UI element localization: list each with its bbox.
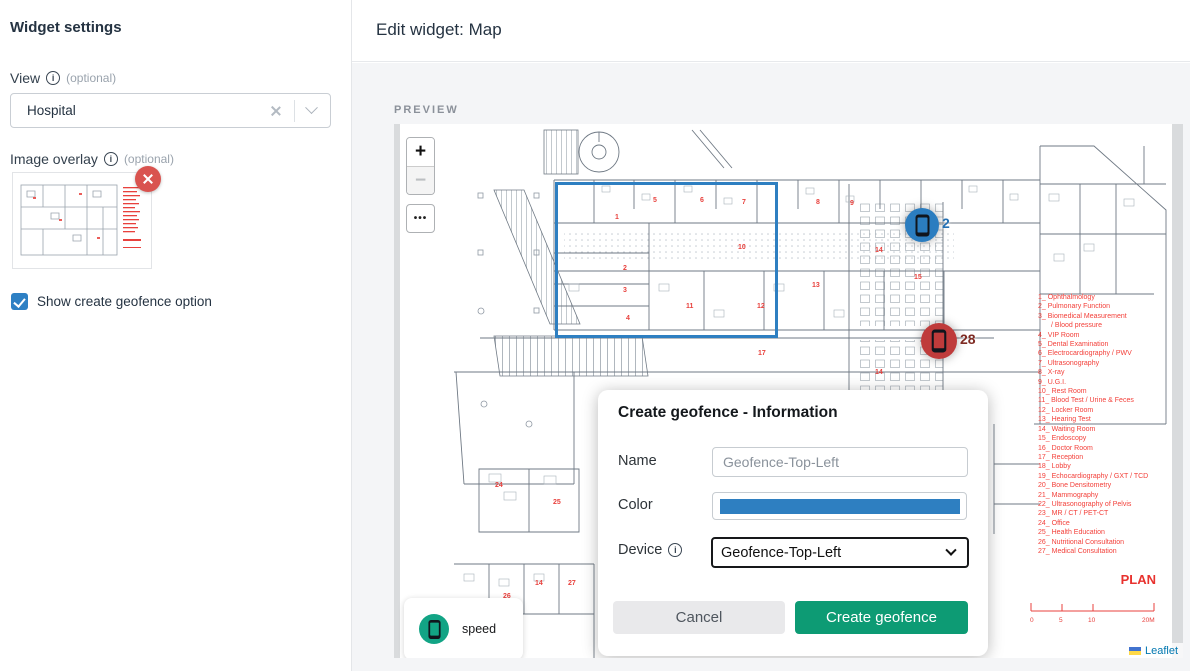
remove-overlay-button[interactable] [135,166,161,192]
marker-circle [905,208,939,242]
dialog-title: Create geofence - Information [618,404,838,422]
plan-legend-item: 11_ Blood Test / Urine & Feces [1038,396,1170,405]
speed-marker-circle [419,614,449,644]
overlay-field-label: Image overlay (optional) [10,151,174,167]
plan-legend-item: 7_ Ultrasonography [1038,359,1170,368]
view-field-label: View (optional) [10,70,116,86]
plan-legend-item: / Blood pressure [1038,321,1170,330]
phone-icon [915,214,930,237]
zoom-in-button[interactable]: + [407,138,434,166]
plan-legend-item: 25_ Health Education [1038,528,1170,537]
plan-legend-item: 2_ Pulmonary Function [1038,302,1170,311]
create-geofence-button[interactable]: Create geofence [795,601,968,634]
plan-legend-item: 10_ Rest Room [1038,387,1170,396]
plan-title: PLAN [1094,572,1156,587]
geofence-name-input[interactable] [712,447,968,477]
select-divider [294,100,295,122]
color-swatch [720,499,960,514]
marker-count: 28 [960,331,976,347]
plan-legend-item: 9_ U.G.I. [1038,378,1170,387]
show-geofence-checkbox[interactable] [11,293,28,310]
chevron-down-icon[interactable] [305,101,318,114]
leaflet-attribution-link[interactable]: Leaflet [1145,645,1178,657]
overlay-optional-hint: (optional) [124,152,174,166]
speed-legend-label: speed [462,622,496,636]
marker-count: 2 [942,215,950,231]
plan-legend-item: 19_ Echocardiography / GXT / TCD [1038,472,1170,481]
show-geofence-label: Show create geofence option [37,294,212,309]
plan-legend-item: 5_ Dental Examination [1038,340,1170,349]
plan-legend-item: 14_ Waiting Room [1038,425,1170,434]
plan-legend-item: 18_ Lobby [1038,462,1170,471]
preview-label: PREVIEW [394,104,459,116]
overlay-label: Image overlay [10,151,98,167]
svg-text:20M: 20M [1142,617,1155,624]
plan-legend-item: 16_ Doctor Room [1038,444,1170,453]
view-label: View [10,70,40,86]
image-overlay-thumbnail [12,172,152,269]
plan-legend-item: 24_ Office [1038,519,1170,528]
plan-legend-item: 20_ Bone Densitometry [1038,481,1170,490]
map-more-button[interactable]: ••• [406,204,435,233]
scale-bar: 0 5 10 20M [1030,601,1160,627]
svg-text:5: 5 [1059,617,1063,624]
create-geofence-dialog: Create geofence - Information Name Color… [598,390,988,656]
plan-legend-item: 12_ Locker Room [1038,406,1170,415]
device-marker-blue[interactable]: 2 [905,208,939,242]
view-select-value: Hospital [11,103,270,118]
plan-legend-item: 23_ MR / CT / PET-CT [1038,509,1170,518]
plan-legend-item: 21_ Mammography [1038,491,1170,500]
plan-legend-item: 6_ Electrocardiography / PWV [1038,349,1170,358]
phone-icon [428,619,441,640]
clear-icon[interactable] [270,105,282,117]
view-optional-hint: (optional) [66,71,116,85]
plan-legend-item: 26_ Nutritional Consultation [1038,538,1170,547]
name-label: Name [618,453,657,469]
chevron-down-icon [945,544,956,555]
panel-title: Widget settings [10,19,122,36]
zoom-controls: + − [406,137,435,195]
phone-icon [931,329,947,353]
plan-legend-item: 3_ Biomedical Measurement [1038,312,1170,321]
plan-legend-item: 1_ Ophthalmology [1038,293,1170,302]
device-label-row: Device [618,542,682,558]
plan-legend-item: 27_ Medical Consultation [1038,547,1170,556]
color-label: Color [618,497,653,513]
overlay-preview-image [13,173,151,268]
device-select[interactable]: Geofence-Top-Left [711,537,969,568]
device-label: Device [618,542,662,558]
widget-settings-panel: Widget settings View (optional) Hospital… [0,0,352,671]
map-legend-speed: speed [404,598,523,658]
svg-text:0: 0 [1030,617,1034,624]
ukraine-flag-icon [1129,647,1141,655]
plan-legend-item: 22_ Ultrasonography of Pelvis [1038,500,1170,509]
map-preview[interactable]: 12345678910111213141514172425261427 2 28 [394,124,1183,658]
geofence-color-input[interactable] [712,492,967,520]
geofence-rectangle[interactable] [555,182,778,338]
info-icon [668,543,682,557]
content-area: PREVIEW [352,63,1190,671]
info-icon [104,152,118,166]
page-title: Edit widget: Map [376,20,502,40]
plan-legend-item: 8_ X-ray [1038,368,1170,377]
device-select-value: Geofence-Top-Left [713,545,947,561]
marker-circle [921,323,957,359]
plan-legend-item: 4_ VIP Room [1038,331,1170,340]
map-attribution: Leaflet [1124,643,1183,658]
svg-text:10: 10 [1088,617,1096,624]
plan-legend-item: 17_ Reception [1038,453,1170,462]
cancel-button[interactable]: Cancel [613,601,785,634]
close-icon [142,173,154,185]
device-marker-red[interactable]: 28 [921,323,957,359]
edit-widget-header: Edit widget: Map [352,0,1190,62]
view-select[interactable]: Hospital [10,93,331,128]
info-icon [46,71,60,85]
plan-legend-item: 15_ Endoscopy [1038,434,1170,443]
plan-legend-item: 13_ Hearing Test [1038,415,1170,424]
zoom-out-button[interactable]: − [407,166,434,194]
plan-legend-list: 1_ Ophthalmology2_ Pulmonary Function3_ … [1038,293,1170,556]
